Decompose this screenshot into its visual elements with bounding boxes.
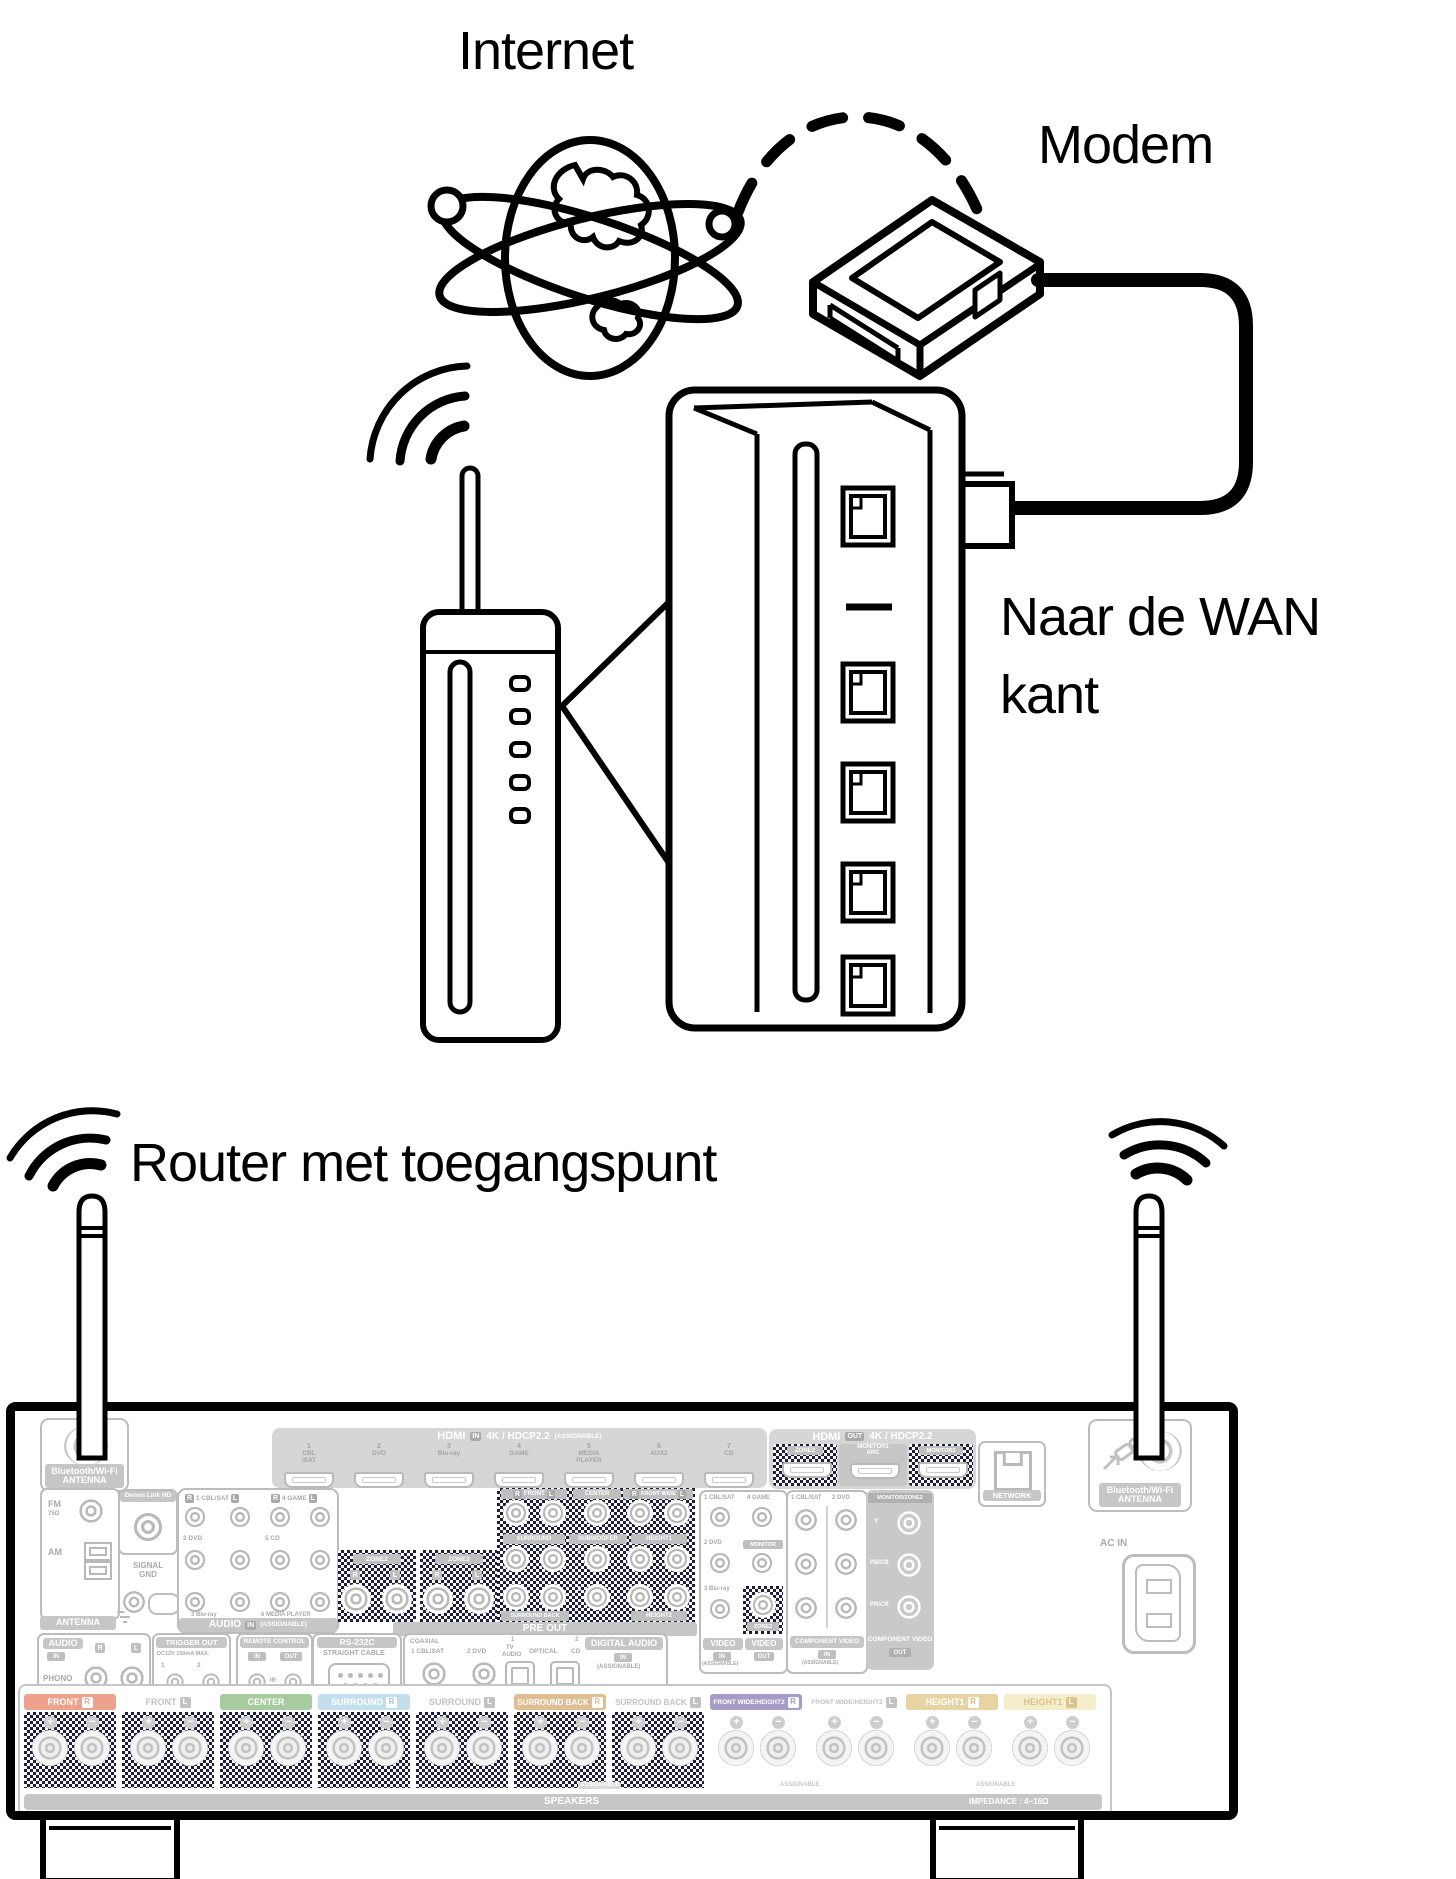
gnd: GND: [139, 1570, 157, 1579]
binding-post: [172, 1730, 208, 1766]
router-label: Router met toegangspunt: [130, 1124, 716, 1202]
opt2-num: 2: [575, 1637, 578, 1644]
router-led: [511, 677, 529, 690]
component-divider: [826, 1506, 828, 1628]
spk-text: SURROUND: [331, 1697, 383, 1707]
port-name: MEDIA: [554, 1450, 624, 1457]
spk-label-surroundback-r: SURROUND BACKR: [514, 1694, 606, 1710]
internet-globe-icon: [430, 140, 750, 376]
rca-jack: [503, 1584, 529, 1610]
r-chip: R: [630, 1490, 639, 1499]
internet-label: Internet: [458, 12, 633, 90]
binding-post: [956, 1730, 992, 1766]
hdmi-connector: [918, 1462, 968, 1478]
impedance-label: IMPEDANCE : 4~16Ω: [969, 1798, 1049, 1806]
zone3-label: ZONE3: [435, 1554, 483, 1564]
spk-badge: L: [886, 1697, 897, 1708]
hdmi-connector: [564, 1472, 614, 1488]
spk-badge: R: [386, 1697, 397, 1708]
spk-label-center: CENTER: [220, 1694, 312, 1710]
port-num: 7: [694, 1443, 764, 1450]
network-port: [994, 1451, 1032, 1491]
hdmi-port-6-aux2: 6 AUX2: [624, 1443, 694, 1487]
ac-inlet-shield: [1135, 1564, 1181, 1642]
hdmi-out-block: HDMI OUT 4K / HDCP2.2 ZONE2 MONITOR1 ARC…: [769, 1429, 976, 1489]
spk-text: SURROUND: [429, 1697, 481, 1707]
lan-port: [843, 764, 893, 821]
coax1-label: 1 CBL/SAT: [411, 1648, 444, 1655]
port-name: CBL: [274, 1450, 344, 1457]
l-chip: L: [547, 1490, 555, 1499]
rca-jack-out: [894, 1508, 924, 1538]
port-num: 5: [554, 1443, 624, 1450]
bt-line2: ANTENNA: [63, 1476, 107, 1485]
rca-jack: [267, 1547, 293, 1573]
denon-link-block: Denon Link HD: [118, 1489, 178, 1555]
remote-in-chip: IN: [248, 1652, 266, 1661]
receiver-rear-panel: Bluetooth/Wi-Fi ANTENNA FM 75Ω AM ANTENN…: [6, 1402, 1238, 1820]
r-badge: R: [350, 1570, 360, 1580]
wifi-arc: [53, 1164, 101, 1186]
modem-label: Modem: [1038, 106, 1213, 184]
wifi-arc: [10, 1111, 117, 1158]
rca-jack: [267, 1504, 293, 1530]
router-led: [511, 809, 529, 822]
spk-badge: R: [968, 1697, 979, 1708]
hdmi-connector: [494, 1472, 544, 1488]
hdmi-port-4-game: 4 GAME: [484, 1443, 554, 1487]
spk-badge: L: [1066, 1697, 1077, 1708]
rca-jack: [707, 1550, 733, 1576]
rca-jack: [341, 1584, 371, 1614]
audio-in-block: R 1 CBL/SAT L R 4 GAME L 2 DVD 5 CD 3 Bl…: [177, 1488, 339, 1634]
r-chip: R: [271, 1494, 280, 1503]
video-in-assignable: (ASSIGNABLE): [702, 1662, 738, 1668]
plus-terminal: +: [1024, 1716, 1037, 1729]
rca-jack: [423, 1584, 453, 1614]
video-monitor-label: MONITOR: [743, 1540, 783, 1549]
spk-text: SURROUND BACK: [517, 1698, 589, 1707]
video-zone2-label: ZONE2: [747, 1622, 779, 1631]
speakers-bar: SPEAKERS IMPEDANCE : 4~16Ω: [24, 1794, 1102, 1810]
ac-in-label: AC IN: [1100, 1538, 1127, 1549]
hdmi-connector: [284, 1472, 334, 1488]
hdmi-port-1-cblsat: 1 CBL /SAT: [274, 1443, 344, 1487]
trigger-spec: DC12V 150mA MAX.: [157, 1651, 209, 1657]
bt-antenna-right-block: Bluetooth/Wi-Fi ANTENNA: [1088, 1419, 1192, 1512]
y-label: Y: [874, 1518, 879, 1525]
binding-post: [424, 1730, 460, 1766]
hdmi-connector: [634, 1472, 684, 1488]
satellite-node-left: [431, 190, 463, 222]
antenna-bar: ANTENNA: [40, 1616, 116, 1630]
video-jack4-label: 4 GAME: [747, 1495, 770, 1502]
rca-jack: [664, 1546, 690, 1572]
signal-gnd-label: SIGNAL GND: [126, 1562, 170, 1580]
lan-port: [843, 664, 893, 721]
assignable-text: (ASSIGNABLE): [260, 1622, 307, 1629]
assignable-label: ASSIGNABLE: [578, 1782, 621, 1789]
router-led: [511, 743, 529, 756]
rca-jack: [750, 1592, 776, 1618]
hdmi-port-2-dvd: 2 DVD: [344, 1443, 414, 1487]
am-label: AM: [48, 1548, 62, 1558]
rca-jack: [540, 1584, 566, 1610]
hdmi-out-monitor2-label: MONITOR2: [919, 1446, 963, 1455]
fm-label: FM: [48, 1500, 61, 1510]
remote-out-chip: OUT: [280, 1652, 302, 1661]
minus-terminal: −: [86, 1716, 99, 1729]
l-chip: L: [678, 1490, 686, 1499]
in-chip: IN: [470, 1432, 481, 1441]
rca-jack: [584, 1500, 610, 1526]
spk-label-front-r: FRONTR: [24, 1694, 116, 1710]
plus-terminal: +: [142, 1716, 155, 1729]
trigger-title-bar: TRIGGER OUT: [156, 1637, 227, 1648]
audio-jack2-label: 2 DVD: [183, 1535, 202, 1542]
fm-ohm-label: 75Ω: [48, 1511, 59, 1518]
binding-post: [522, 1730, 558, 1766]
gnd-connector-2: [148, 1593, 180, 1615]
trigger-1: 1: [161, 1662, 165, 1669]
rca-jack: [540, 1500, 566, 1526]
binding-post: [620, 1730, 656, 1766]
rca-jack: [707, 1596, 733, 1622]
ac-slot-top: [1146, 1579, 1172, 1594]
network-block: NETWORK: [978, 1441, 1046, 1507]
receiver-foot-left: [40, 1812, 180, 1879]
ac-slot-bottom: [1146, 1613, 1172, 1628]
fm-connector: [76, 1496, 106, 1526]
opt1-num: 1: [511, 1637, 514, 1644]
binding-post: [914, 1730, 950, 1766]
spk-badge: R: [82, 1697, 93, 1708]
hdmi-in-spec: 4K / HDCP2.2: [486, 1431, 549, 1442]
phono-label: PHONO: [43, 1675, 72, 1684]
hdmi-connector: [782, 1462, 832, 1478]
l-chip: L: [309, 1494, 317, 1503]
coax2-label: 2 DVD: [467, 1648, 486, 1655]
video-out-chip: OUT: [754, 1652, 774, 1661]
minus-terminal: −: [674, 1716, 687, 1729]
minus-terminal: −: [870, 1716, 883, 1729]
l-badge: L: [390, 1570, 400, 1580]
hdmi-in-header: HDMI IN 4K / HDCP2.2 (ASSIGNABLE): [272, 1429, 767, 1443]
wifi-arc: [1112, 1122, 1224, 1146]
spk-label-height1-r: HEIGHT1R: [906, 1694, 998, 1710]
component-out-chip: OUT: [889, 1648, 911, 1657]
rca-jack: [227, 1547, 253, 1573]
binding-post: [816, 1730, 852, 1766]
zone2-label: ZONE2: [353, 1554, 401, 1564]
phono-in-chip: IN: [47, 1652, 65, 1661]
plus-terminal: +: [828, 1716, 841, 1729]
r-badge: R: [432, 1570, 442, 1580]
minus-terminal: −: [478, 1716, 491, 1729]
component-out-title: COMPONENT VIDEO: [866, 1636, 934, 1643]
bt-antenna-right-label: Bluetooth/Wi-Fi ANTENNA: [1099, 1483, 1181, 1507]
spk-label-height1-l: HEIGHT1L: [1004, 1694, 1096, 1710]
out-chip: OUT: [845, 1432, 864, 1441]
port-name2: /SAT: [274, 1457, 344, 1464]
wifi-arc: [29, 1138, 106, 1176]
rca-jack: [832, 1506, 860, 1534]
l-badge: L: [131, 1643, 141, 1653]
hdmi-out-spec: 4K / HDCP2.2: [869, 1431, 932, 1442]
component-in-block: 1 CBL/SAT 2 DVD COMPONENT VIDEO IN (ASSI…: [786, 1490, 868, 1674]
plus-terminal: +: [730, 1716, 743, 1729]
spk-text: HEIGHT1: [925, 1697, 964, 1707]
ethernet-plug: [910, 484, 1012, 546]
hdmi-port-3-bluray: 3 Blu-ray: [414, 1443, 484, 1487]
video-in-bar: VIDEO: [703, 1638, 743, 1650]
binding-post: [270, 1730, 306, 1766]
bt-antenna-left-label: Bluetooth/Wi-Fi ANTENNA: [45, 1464, 124, 1488]
r-badge: R: [95, 1643, 105, 1653]
component-col2-label: 2 DVD: [832, 1495, 850, 1502]
arc-label: ARC: [839, 1450, 907, 1456]
rca-jack: [792, 1506, 820, 1534]
sub2-label: 2: [577, 1586, 581, 1594]
spk-text: CENTER: [247, 1697, 284, 1707]
rca-jack: [664, 1500, 690, 1526]
spk-text: HEIGHT1: [1023, 1697, 1062, 1707]
hdmi-out-header: HDMI OUT 4K / HDCP2.2: [769, 1430, 976, 1443]
bt-line2: ANTENNA: [1118, 1495, 1162, 1504]
spk-text: FRONT: [146, 1697, 177, 1707]
video-zone2-cell: ZONE2: [743, 1586, 783, 1634]
rs232c-sub: STRAIGHT CABLE: [323, 1650, 385, 1658]
preout-main-block: RFRONTL CENTER RFRONT WIDEL SURROUND SUB…: [497, 1488, 695, 1622]
binding-post: [326, 1730, 362, 1766]
rca-jack: [832, 1550, 860, 1578]
rca-jack: [227, 1504, 253, 1530]
minus-terminal: −: [1066, 1716, 1079, 1729]
video-jack1-label: 1 CBL/SAT: [704, 1495, 735, 1502]
binding-post: [858, 1730, 894, 1766]
preout-subwoofer-label: SUBWOOFER: [569, 1534, 627, 1544]
minus-terminal: −: [184, 1716, 197, 1729]
spk-label-surroundback-l: SURROUND BACKL: [612, 1694, 704, 1710]
router-led: [511, 710, 529, 723]
wan-label-line2: kant: [1000, 665, 1098, 725]
router-led: [511, 776, 529, 789]
rca-jack: [307, 1547, 333, 1573]
minus-terminal: −: [772, 1716, 785, 1729]
signal: SIGNAL: [133, 1561, 163, 1570]
audio-jack4-text: 4 GAME: [282, 1495, 307, 1502]
binding-post: [130, 1730, 166, 1766]
zoom-callout-wedge: [562, 600, 671, 866]
denon-link-connector: [130, 1509, 166, 1545]
rca-jack: [584, 1584, 610, 1610]
bt-antenna-left-block: Bluetooth/Wi-Fi ANTENNA: [40, 1418, 129, 1492]
plus-terminal: +: [338, 1716, 351, 1729]
hdmi-connector: [424, 1472, 474, 1488]
binding-post: [1012, 1730, 1048, 1766]
antenna-block: FM 75Ω AM: [40, 1488, 120, 1620]
router-antenna: [462, 468, 478, 643]
network-label: NETWORK: [983, 1490, 1041, 1501]
hdmi-in-title: HDMI: [437, 1430, 465, 1442]
rca-jack: [382, 1584, 412, 1614]
port-name: AUX2: [624, 1450, 694, 1457]
sub1-label: 1: [577, 1548, 581, 1556]
spk-badge: R: [592, 1697, 603, 1708]
rca-jack: [227, 1589, 253, 1615]
rs232c-title-bar: RS-232C: [317, 1637, 397, 1648]
opt1-tv: TV: [506, 1645, 514, 1652]
component-in-assignable: (ASSIGNABLE): [802, 1661, 838, 1667]
plus-terminal: +: [44, 1716, 57, 1729]
front-wide-text: FRONT WIDE: [641, 1491, 676, 1497]
binding-post: [662, 1730, 698, 1766]
binding-post: [466, 1730, 502, 1766]
binding-post: [368, 1730, 404, 1766]
rca-jack: [627, 1584, 653, 1610]
assignable-label: ASSIGNABLE: [976, 1782, 1015, 1789]
audio-jack4-label: R 4 GAME L: [271, 1494, 317, 1503]
antenna-attach-icon: [1096, 1433, 1140, 1477]
am-terminal-2: [84, 1561, 112, 1580]
video-jack2-label: 2 DVD: [704, 1540, 722, 1547]
rca-jack: [664, 1584, 690, 1610]
antenna-mount-right: [1138, 1431, 1182, 1471]
rca-jack: [182, 1547, 208, 1573]
spk-label-frontwide-l: FRONT WIDE/HEIGHT2L: [808, 1694, 900, 1710]
spk-badge: R: [788, 1697, 799, 1708]
rca-jack: [182, 1504, 208, 1530]
rca-jack: [707, 1504, 733, 1530]
speakers-section: FRONTR FRONTL CENTER SURROUNDR SURROUNDL…: [18, 1684, 1112, 1818]
hdmi-in-ports: 1 CBL /SAT 2 DVD 3 Blu-ray 4 GAME 5: [274, 1443, 765, 1487]
rca-jack: [627, 1500, 653, 1526]
digital-audio-in-chip: IN: [614, 1653, 632, 1662]
wifi-arc: [1136, 1168, 1187, 1180]
rca-jack: [792, 1550, 820, 1578]
port-num: 6: [624, 1443, 694, 1450]
port-name: DVD: [344, 1450, 414, 1457]
rca-jack: [792, 1594, 820, 1622]
preout-zone3-block: ZONE3 R L: [420, 1550, 498, 1622]
spk-text: FRONT: [48, 1697, 79, 1707]
rca-jack-out: [894, 1592, 924, 1622]
preout-front-label: RFRONTL: [501, 1489, 567, 1499]
port-num: 2: [344, 1443, 414, 1450]
port-name: Blu-ray: [414, 1450, 484, 1457]
binding-post: [760, 1730, 796, 1766]
assignable-text: (ASSIGNABLE): [555, 1433, 602, 1440]
speakers-title: SPEAKERS: [544, 1797, 599, 1808]
plus-terminal: +: [926, 1716, 939, 1729]
router-vent-slot: [795, 444, 817, 1000]
port-name: GAME: [484, 1450, 554, 1457]
modem-icon: [813, 200, 1040, 376]
hdmi-connector: [704, 1472, 754, 1488]
binding-post: [564, 1730, 600, 1766]
wifi-arc: [370, 366, 467, 459]
binding-post: [228, 1730, 264, 1766]
assignable-label: ASSIGNABLE: [780, 1782, 819, 1789]
audio-in-bar: AUDIO IN (ASSIGNABLE): [179, 1618, 337, 1632]
rca-jack-out: [894, 1550, 924, 1580]
pr-label: PR/CR: [870, 1602, 889, 1608]
binding-post: [32, 1730, 68, 1766]
preout-surround-label: SURROUND: [503, 1534, 565, 1544]
port-num: 1: [274, 1443, 344, 1450]
rca-jack: [464, 1584, 494, 1614]
wan-label-line1: Naar de WAN: [1000, 587, 1320, 647]
denon-link-label: Denon Link HD: [120, 1491, 176, 1502]
wireless-router-icon: [370, 366, 558, 1040]
ac-inlet: [1122, 1554, 1196, 1654]
in-chip: IN: [245, 1621, 256, 1630]
lan-port: [843, 957, 893, 1014]
preout-center-label: CENTER: [573, 1489, 621, 1499]
spk-label-surround-l: SURROUNDL: [416, 1694, 508, 1710]
spk-label-surround-r: SURROUNDR: [318, 1694, 410, 1710]
video-in-chip: IN: [713, 1652, 731, 1661]
binding-post: [718, 1730, 754, 1766]
spk-label-frontwide-r: FRONT WIDE/HEIGHT2R: [710, 1694, 802, 1710]
monitor-zone2-label: MONITOR/ZONE2: [868, 1493, 932, 1503]
minus-terminal: −: [380, 1716, 393, 1729]
router-slot: [450, 662, 470, 1012]
optical-label: OPTICAL: [529, 1648, 558, 1655]
video-jack3-label: 3 Blu-ray: [704, 1586, 730, 1593]
minus-terminal: −: [968, 1716, 981, 1729]
minus-terminal: −: [282, 1716, 295, 1729]
hdmi-out-zone2-cell: ZONE2: [773, 1444, 837, 1486]
rca-jack: [503, 1500, 529, 1526]
port-name2: PLAYER: [554, 1457, 624, 1464]
r-chip: R: [513, 1490, 522, 1499]
receiver-foot-right: [930, 1812, 1084, 1879]
hdmi-connector: [850, 1463, 900, 1479]
hdmi-out-zone2-label: ZONE2: [787, 1446, 823, 1455]
plus-terminal: +: [632, 1716, 645, 1729]
phono-title-bar: AUDIO: [43, 1638, 83, 1649]
hdmi-port-7-cd: 7 CD: [694, 1443, 764, 1487]
port-num: 3: [414, 1443, 484, 1450]
hdmi-out-title: HDMI: [812, 1431, 840, 1443]
preout-height1-label: HEIGHT1: [631, 1534, 687, 1544]
trigger-2: 2: [197, 1662, 201, 1669]
spk-text: FRONT WIDE/HEIGHT2: [811, 1699, 882, 1706]
rca-jack: [307, 1504, 333, 1530]
l-chip: L: [231, 1494, 239, 1503]
spk-badge: L: [484, 1697, 495, 1708]
video-out-bar: VIDEO: [745, 1638, 783, 1650]
digital-audio-title: DIGITAL AUDIO: [585, 1637, 663, 1650]
preout-surroundback-label: SURROUND BACK: [501, 1611, 569, 1621]
antenna-mount-left: [64, 1426, 108, 1466]
l-badge: L: [472, 1570, 482, 1580]
spk-text: SURROUND BACK: [615, 1698, 687, 1707]
video-block: 1 CBL/SAT 4 GAME 2 DVD MONITOR 3 Blu-ray…: [699, 1490, 788, 1674]
rca-jack: [540, 1546, 566, 1572]
spk-text: FRONT WIDE/HEIGHT2: [713, 1699, 784, 1706]
wan-port: [843, 488, 893, 545]
wifi-arc: [1124, 1145, 1206, 1163]
router-rear-zoom-panel: [669, 390, 962, 1028]
am-terminal-1: [84, 1542, 112, 1561]
plus-terminal: +: [436, 1716, 449, 1729]
plus-terminal: +: [534, 1716, 547, 1729]
binding-post: [1054, 1730, 1090, 1766]
audio-title: AUDIO: [209, 1620, 241, 1631]
component-out-block: MONITOR/ZONE2 Y PB/CB PR/CR COMPONENT VI…: [866, 1490, 934, 1670]
